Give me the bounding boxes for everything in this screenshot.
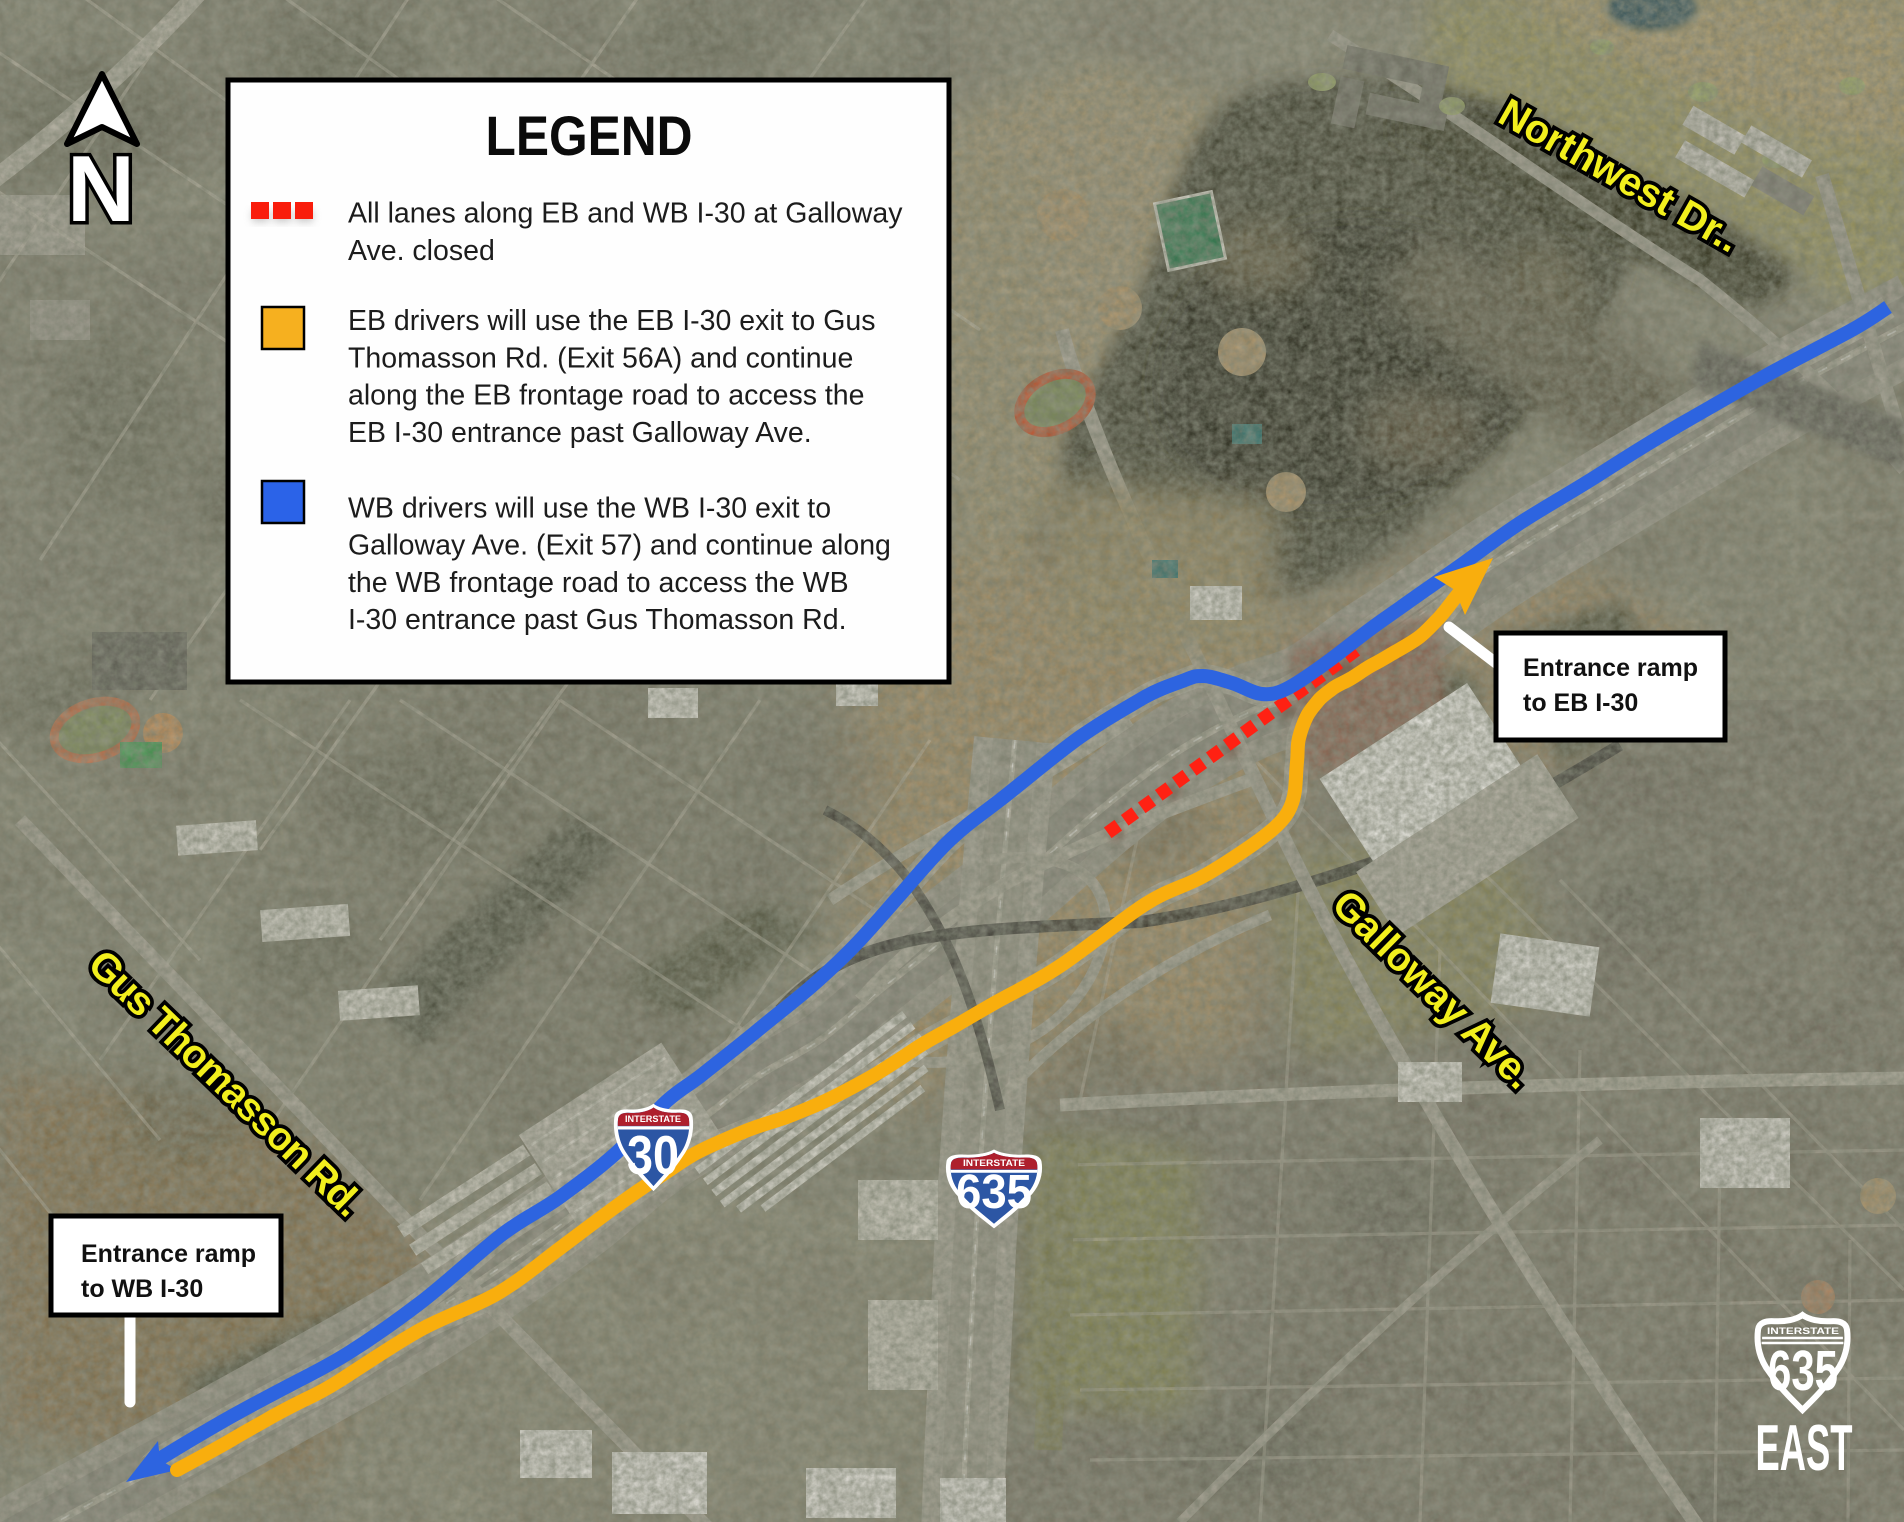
svg-text:EAST: EAST — [1755, 1412, 1852, 1485]
svg-text:30: 30 — [627, 1124, 679, 1186]
svg-text:LEGEND: LEGEND — [486, 104, 693, 167]
svg-text:to EB I-30: to EB I-30 — [1523, 689, 1638, 717]
svg-text:I-30 entrance past Gus Thomass: I-30 entrance past Gus Thomasson Rd. — [348, 604, 847, 636]
svg-text:635: 635 — [1768, 1339, 1838, 1403]
svg-text:EB drivers will use the EB I-3: EB drivers will use the EB I-30 exit to … — [348, 305, 875, 337]
svg-text:INTERSTATE: INTERSTATE — [1767, 1326, 1839, 1336]
svg-text:to WB I-30: to WB I-30 — [81, 1275, 203, 1303]
svg-text:Thomasson Rd. (Exit 56A) and c: Thomasson Rd. (Exit 56A) and continue — [348, 342, 853, 374]
svg-text:N: N — [67, 136, 135, 241]
svg-text:along the EB frontage road to: along the EB frontage road to access the — [348, 380, 865, 412]
svg-text:Entrance ramp: Entrance ramp — [81, 1240, 256, 1268]
svg-text:EB I-30 entrance past Galloway: EB I-30 entrance past Galloway Ave. — [348, 417, 812, 449]
svg-text:WB drivers will use the WB I-3: WB drivers will use the WB I-30 exit to — [348, 492, 831, 524]
svg-text:635: 635 — [956, 1166, 1032, 1219]
svg-text:Ave. closed: Ave. closed — [348, 235, 495, 267]
svg-text:Entrance ramp: Entrance ramp — [1523, 654, 1698, 682]
svg-text:Galloway Ave. (Exit 57) and co: Galloway Ave. (Exit 57) and continue alo… — [348, 530, 891, 562]
svg-text:All lanes along EB and WB I-30: All lanes along EB and WB I-30 at Gallow… — [348, 198, 903, 230]
svg-text:the WB frontage road to access: the WB frontage road to access the WB — [348, 567, 849, 599]
